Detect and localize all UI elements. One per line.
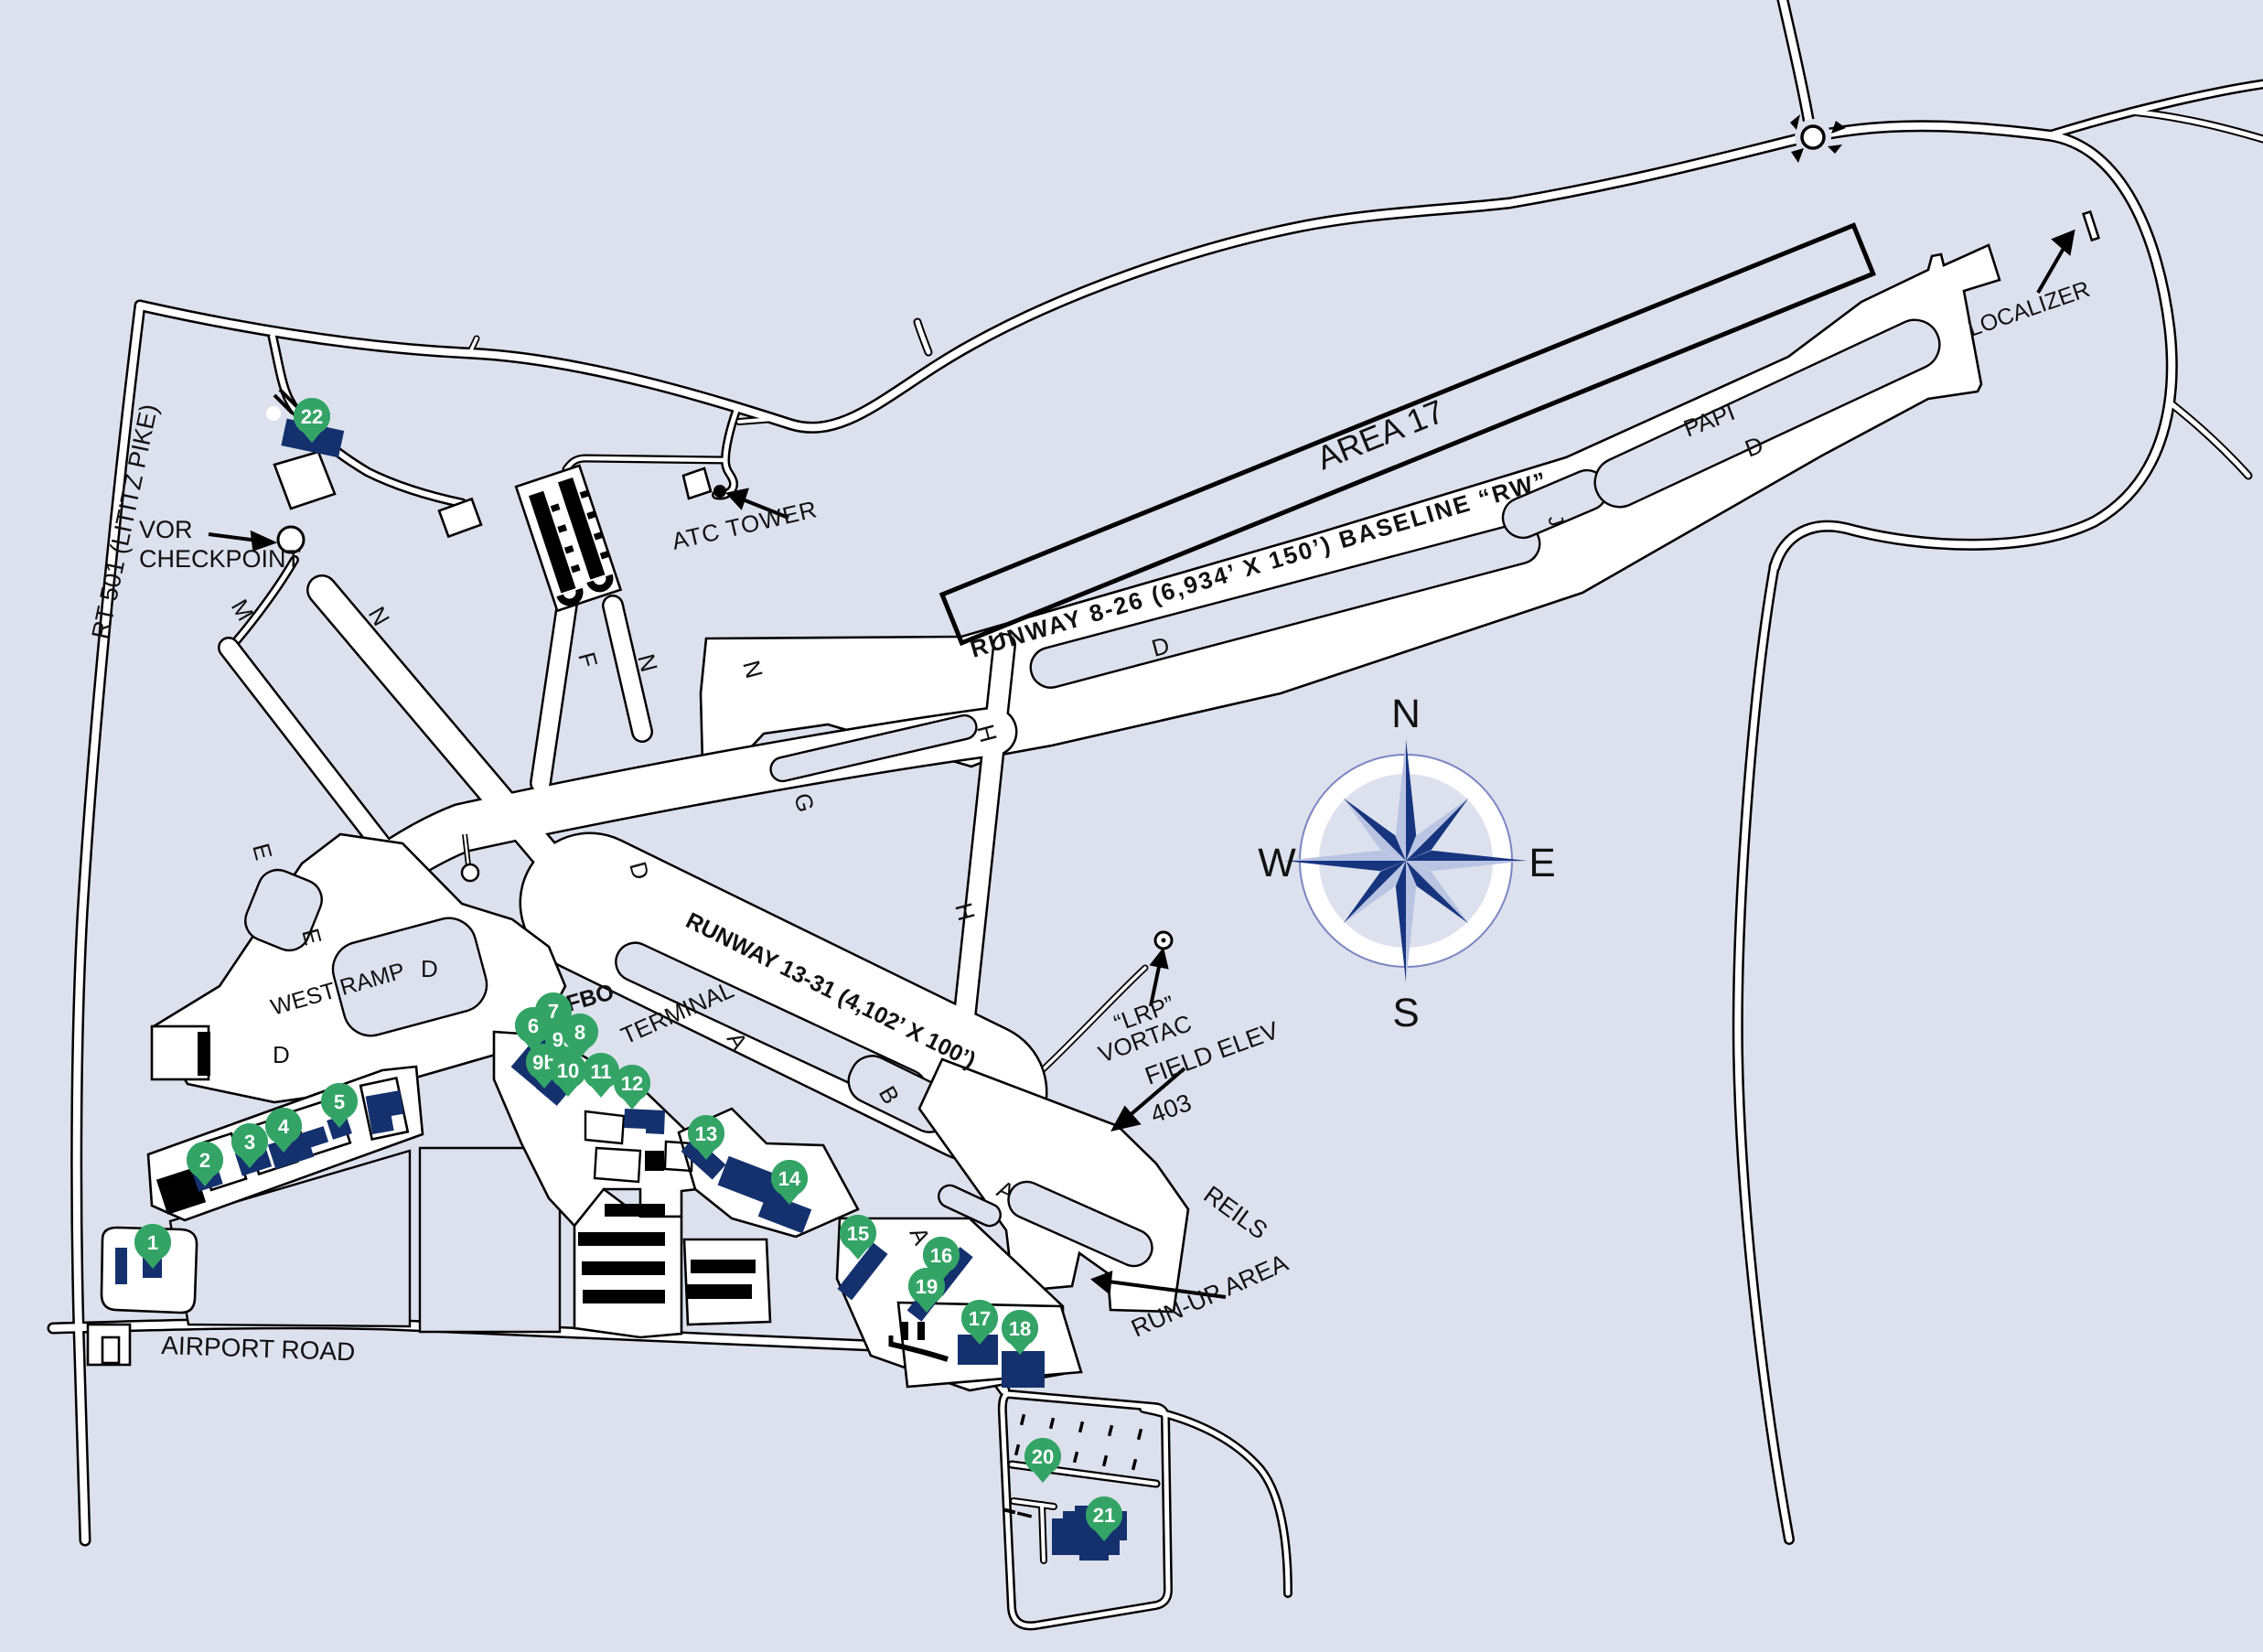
svg-text:20: 20 — [1032, 1445, 1054, 1468]
svg-text:10: 10 — [557, 1059, 579, 1082]
svg-text:W: W — [1258, 841, 1296, 885]
svg-text:D: D — [273, 1041, 290, 1068]
svg-text:12: 12 — [621, 1072, 643, 1095]
svg-text:8: 8 — [574, 1021, 585, 1044]
svg-text:1: 1 — [147, 1231, 158, 1254]
svg-text:16: 16 — [930, 1244, 952, 1267]
svg-text:17: 17 — [969, 1307, 991, 1330]
svg-text:4: 4 — [278, 1115, 290, 1138]
svg-text:3: 3 — [244, 1131, 255, 1153]
svg-text:D: D — [421, 955, 438, 982]
svg-text:13: 13 — [695, 1122, 717, 1145]
svg-text:14: 14 — [778, 1167, 801, 1190]
svg-text:19: 19 — [916, 1275, 938, 1298]
svg-text:11: 11 — [590, 1060, 611, 1083]
svg-text:N: N — [1391, 692, 1421, 736]
svg-text:22: 22 — [301, 405, 323, 428]
svg-text:21: 21 — [1093, 1504, 1115, 1527]
svg-text:18: 18 — [1009, 1317, 1031, 1340]
svg-text:CHECKPOINT: CHECKPOINT — [139, 545, 301, 573]
svg-text:15: 15 — [847, 1222, 869, 1245]
svg-text:7: 7 — [548, 1000, 559, 1023]
svg-text:E: E — [1528, 841, 1555, 885]
svg-text:S: S — [1392, 991, 1419, 1035]
svg-text:2: 2 — [199, 1149, 210, 1172]
svg-text:VOR: VOR — [139, 516, 193, 543]
svg-text:5: 5 — [334, 1090, 345, 1113]
